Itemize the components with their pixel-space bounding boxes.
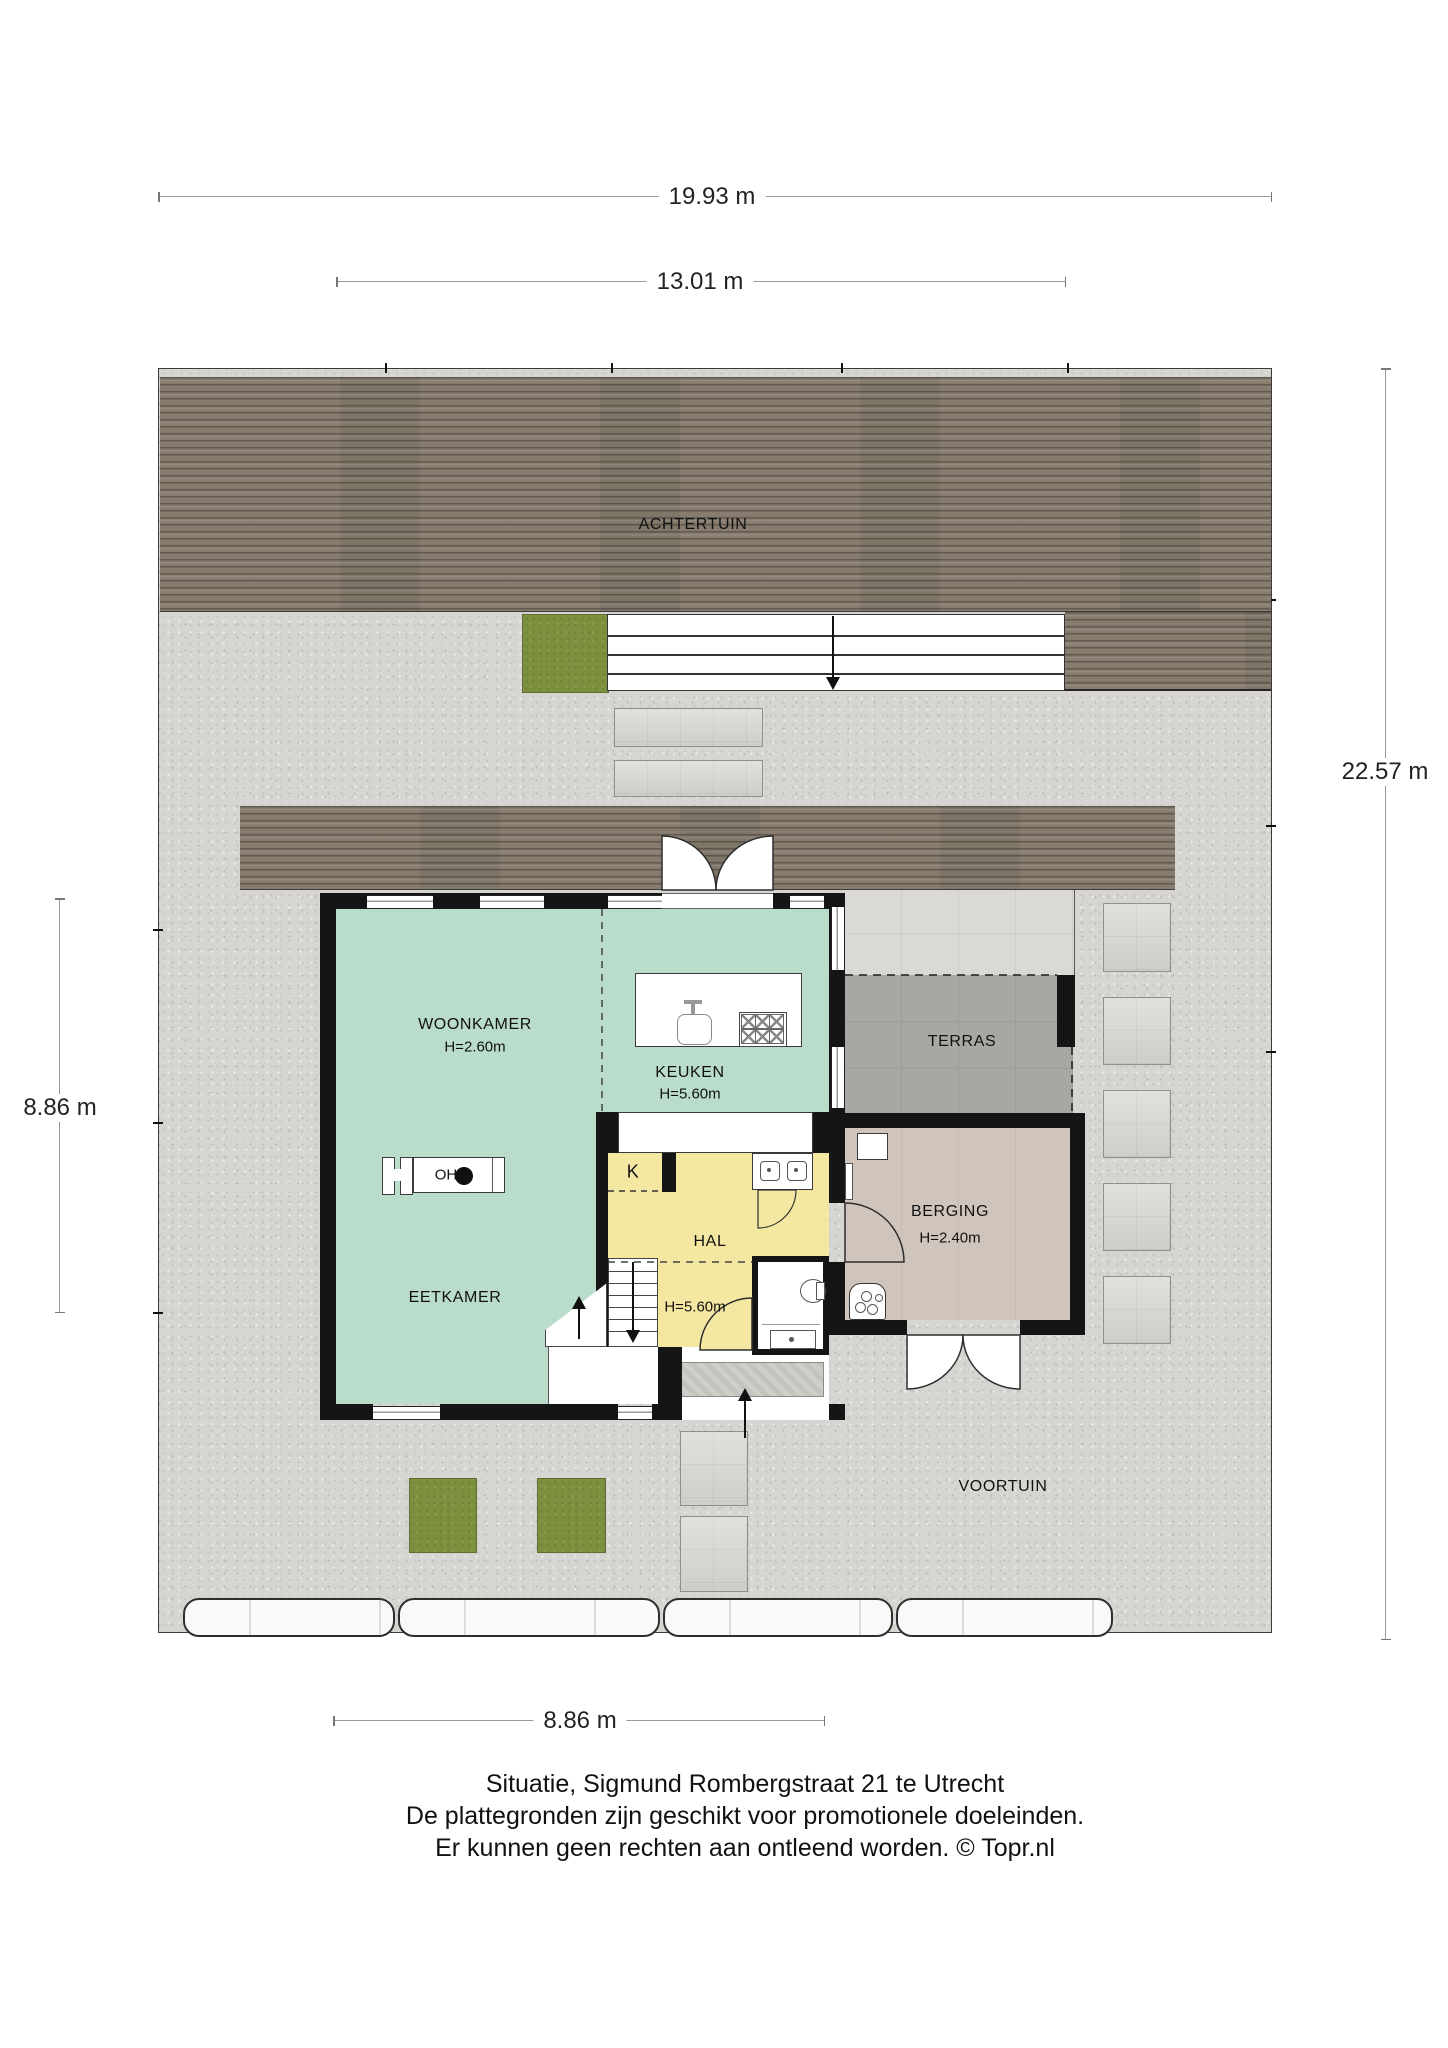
dim-label-house-width-top: 13.01 m	[647, 268, 754, 296]
paving-slab	[1103, 1276, 1171, 1344]
plot-border-tick	[1266, 1051, 1276, 1053]
storage-door-leaf	[845, 1163, 853, 1200]
window-north	[608, 895, 662, 909]
dim-label-house-width-bottom: 8.86 m	[533, 1707, 626, 1735]
wall-porch-stub	[658, 1347, 682, 1404]
terrace-wall-stub	[1057, 975, 1075, 1047]
paving-slab	[1103, 1090, 1171, 1158]
plot-border-tick	[611, 363, 613, 373]
fireplace-connector	[391, 1169, 402, 1181]
front-garden-grass-tile	[537, 1478, 606, 1553]
closet-label: K	[627, 1162, 640, 1183]
dim-label-house-depth: 8.86 m	[13, 1094, 106, 1122]
staircase-arrow-line	[632, 1262, 634, 1332]
wall-south	[440, 1404, 618, 1420]
window-south	[373, 1406, 440, 1420]
wall-south	[320, 1404, 373, 1420]
back-garden-deck	[160, 377, 1271, 612]
wall-closet-right	[662, 1153, 676, 1192]
garden-steps-arrow-line	[832, 616, 834, 678]
toilet-tank	[816, 1282, 825, 1300]
plot-border-tick	[1266, 825, 1276, 827]
front-garden-grass-tile	[409, 1478, 477, 1553]
wall-storage-north	[829, 1113, 1085, 1128]
hal-label: HAL	[694, 1233, 727, 1251]
plot-border-tick	[1067, 363, 1069, 373]
wall-west	[320, 893, 336, 1420]
washbasin-unit	[752, 1153, 813, 1190]
back-garden-deck-east-extension	[1065, 612, 1271, 691]
winder-up-arrow-icon	[572, 1296, 586, 1309]
front-garden-label: VOORTUIN	[959, 1478, 1048, 1496]
hob-icon	[739, 1012, 787, 1047]
porch-opening-south	[682, 1404, 829, 1420]
back-garden-label: ACHTERTUIN	[639, 516, 748, 534]
basin-drain	[794, 1168, 798, 1172]
wall-storage-west	[829, 1128, 845, 1203]
terrace-label: TERRAS	[928, 1033, 997, 1051]
plot-border-tick	[153, 1122, 163, 1124]
paving-slab	[1103, 903, 1171, 972]
wall-storage-west	[829, 1262, 845, 1320]
wall-storage-east	[1070, 1113, 1085, 1335]
window-north	[480, 895, 544, 909]
curb-stone	[398, 1598, 660, 1637]
garden-steps-down-arrow-icon	[826, 677, 840, 690]
woonkamer-label: WOONKAMER	[418, 1016, 532, 1034]
caption-line-2: De plattegronden zijn geschikt voor prom…	[295, 1800, 1195, 1832]
paving-slab	[614, 708, 763, 747]
vanity-icon	[770, 1330, 816, 1349]
window-east	[831, 907, 845, 970]
fireplace-icon	[455, 1167, 473, 1185]
window-south	[618, 1406, 652, 1420]
dim-line-plot-depth	[1385, 368, 1386, 1640]
bathroom	[752, 1256, 829, 1355]
paving-slab	[680, 1516, 748, 1592]
door-opening-north	[662, 893, 773, 909]
wall-counter-right	[813, 1112, 829, 1153]
eetkamer-label: EETKAMER	[409, 1289, 502, 1307]
sink-tap-icon	[684, 1000, 702, 1004]
hal-ceiling: H=5.60m	[664, 1299, 725, 1316]
pergola-deck	[240, 806, 1175, 890]
window-north	[790, 895, 824, 909]
floorplan-canvas: 19.93 m 13.01 m 22.57 m 8.86 m ACHTERTUI…	[0, 0, 1448, 2048]
entry-arrow-line	[744, 1398, 746, 1438]
plot-border-tick	[385, 363, 387, 373]
curb-stone	[663, 1598, 893, 1637]
kitchen-counter	[618, 1112, 813, 1153]
fireplace-cabinet: OH	[413, 1157, 505, 1193]
plot-border-tick	[153, 1312, 163, 1314]
wall-south-corner	[829, 1404, 845, 1420]
staircase-down-arrow-icon	[626, 1330, 640, 1343]
berging-ceiling: H=2.40m	[919, 1230, 980, 1247]
berging-label: BERGING	[911, 1203, 989, 1221]
keuken-ceiling: H=5.60m	[659, 1086, 720, 1103]
dim-label-plot-width: 19.93 m	[659, 183, 766, 211]
wall-storage-south	[829, 1320, 907, 1335]
curb-stone	[183, 1598, 395, 1637]
fireplace-label: OH	[435, 1167, 458, 1184]
paving-slab	[680, 1431, 748, 1506]
wall-counter-left	[596, 1112, 618, 1153]
caption-block: Situatie, Sigmund Rombergstraat 21 te Ut…	[295, 1768, 1195, 1864]
boiler-icon	[849, 1283, 886, 1320]
woonkamer-ceiling: H=2.60m	[444, 1039, 505, 1056]
paving-slab	[1103, 1183, 1171, 1251]
basin-drain	[767, 1168, 771, 1172]
window-east	[831, 1047, 845, 1108]
caption-line-3: Er kunnen geen rechten aan ontleend word…	[295, 1832, 1195, 1864]
paving-slab	[1103, 997, 1171, 1065]
wall-south	[652, 1404, 682, 1420]
wall-storage-south	[1020, 1320, 1085, 1335]
keuken-label: KEUKEN	[655, 1064, 724, 1082]
sink-icon	[677, 1014, 712, 1045]
winder-arrow-line	[578, 1305, 580, 1339]
dim-label-plot-depth: 22.57 m	[1332, 758, 1439, 786]
curb-stone	[896, 1598, 1113, 1637]
plot-border-tick	[841, 363, 843, 373]
paving-slab	[614, 760, 763, 797]
plot-border-tick	[153, 929, 163, 931]
deck-grass-tile	[522, 614, 609, 693]
storage-window-box	[857, 1133, 888, 1160]
covered-terrace	[845, 890, 1075, 975]
window-north	[367, 895, 433, 909]
entry-up-arrow-icon	[738, 1388, 752, 1401]
kitchen-island	[635, 973, 802, 1047]
caption-line-1: Situatie, Sigmund Rombergstraat 21 te Ut…	[295, 1768, 1195, 1800]
